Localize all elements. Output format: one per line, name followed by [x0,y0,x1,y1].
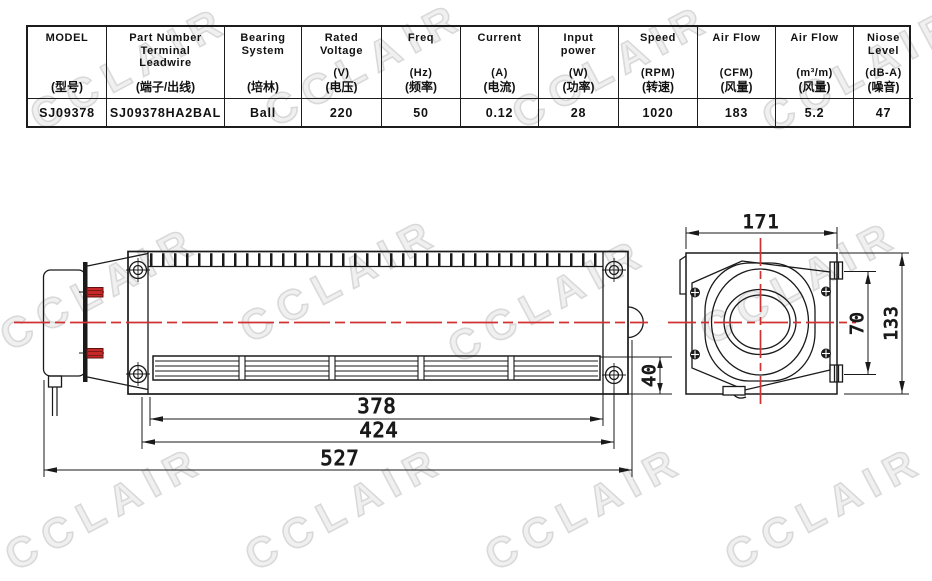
mounting-hole [126,362,150,386]
outlet-grille [153,356,600,380]
value-speed: 1020 [618,99,697,126]
dim-40-label: 40 [639,363,660,387]
header-en: Current [478,32,522,45]
col-header-speed: Speed(RPM)(转速) [618,27,697,99]
side-view [14,252,648,417]
end-view [668,238,856,406]
header-unit: (V) [333,67,349,80]
value-current: 0.12 [460,99,538,126]
motor-strut-top [88,254,149,267]
header-cn: (端子/出线) [136,80,195,95]
dim-527: 527 [44,446,632,473]
value-freq: 50 [381,99,460,126]
header-cn: (培林) [247,80,279,95]
col-header-part-number: Part Number Terminal Leadwire(端子/出线) [106,27,224,99]
value-bearing: Ball [224,99,301,126]
value-airflow-cfm: 183 [697,99,775,126]
dim-70-label: 70 [847,311,868,335]
vent-slots [148,260,603,267]
mounting-hole [126,258,150,282]
header-cn: (噪音) [868,80,900,95]
header-unit: (CFM) [720,67,754,80]
header-cn: (频率) [405,80,437,95]
header-cn: (型号) [51,80,83,95]
col-header-bearing: Bearing System(培林) [224,27,301,99]
header-en: Input power [561,32,596,57]
lead-wires [49,376,62,416]
col-header-voltage: Rated Voltage(V)(电压) [301,27,381,99]
col-header-model: MODEL(型号) [28,27,106,99]
value-model: SJ09378 [28,99,106,126]
header-en: MODEL [46,32,89,45]
col-header-airflow-cfm: Air Flow(CFM)(风量) [697,27,775,99]
header-cn: (风量) [721,80,753,95]
dim-40: 40 [600,357,672,394]
header-cn: (功率) [563,80,595,95]
spec-table: MODEL(型号) SJ09378 Part Number Terminal L… [26,25,911,128]
bottom-notch [723,387,745,396]
col-header-input-power: Input power(W)(功率) [538,27,618,99]
header-unit: (Hz) [410,67,433,80]
mounting-hole [602,363,626,387]
col-header-current: Current(A)(电流) [460,27,538,99]
col-header-freq: Freq(Hz)(频率) [381,27,460,99]
dim-171-label: 171 [742,211,779,233]
terminal-pin [79,288,104,298]
header-unit: (RPM) [641,67,675,80]
header-unit: (m³/m) [796,67,833,80]
header-cn: (电压) [326,80,358,95]
value-part-number: SJ09378HA2BAL [106,99,224,126]
dim-424: 424 [142,418,614,445]
dim-70: 70 [844,272,876,375]
header-unit: (dB-A) [865,67,902,80]
mounting-hole [602,258,626,282]
header-en: Speed [640,32,676,45]
dim-424-label: 424 [359,418,398,442]
value-voltage: 220 [301,99,381,126]
header-en: Freq [408,32,434,45]
header-cn: (风量) [799,80,831,95]
header-cn: (转速) [642,80,674,95]
value-input-power: 28 [538,99,618,126]
dim-527-label: 527 [320,446,359,470]
header-en: Niose Level [867,32,900,57]
header-en: Rated Voltage [320,32,363,57]
end-view-dimensions: 171 70 133 [686,211,909,394]
header-en: Air Flow [712,32,760,45]
value-noise: 47 [853,99,913,126]
col-header-airflow-m3: Air Flow(m³/m)(风量) [775,27,853,99]
header-en: Air Flow [790,32,838,45]
dim-378-label: 378 [357,394,396,418]
header-unit: (A) [491,67,508,80]
header-en: Bearing System [240,32,285,57]
flange-step [680,256,686,294]
value-airflow-m3: 5.2 [775,99,853,126]
header-en: Part Number Terminal Leadwire [129,32,202,70]
dim-171: 171 [686,211,837,249]
header-cn: (电流) [484,80,516,95]
terminal-pin [79,349,104,359]
dim-133-label: 133 [881,305,902,341]
header-unit: (W) [569,67,588,80]
col-header-noise: Niose Level(dB-A)(噪音) [853,27,913,99]
